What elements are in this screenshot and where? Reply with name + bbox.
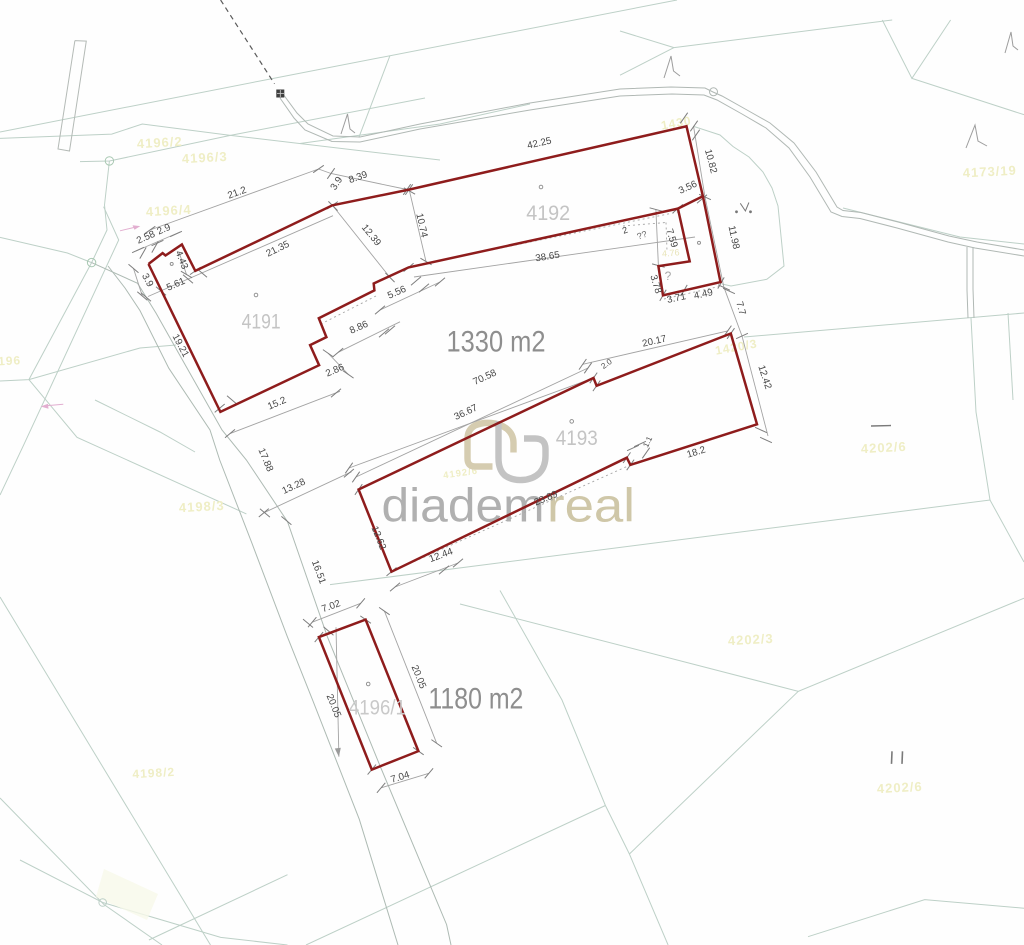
svg-text:4198/3: 4198/3 [179, 498, 225, 515]
svg-text:4196/4: 4196/4 [146, 202, 192, 219]
svg-text:4.76: 4.76 [662, 247, 680, 258]
svg-text:4198/2: 4198/2 [132, 765, 175, 781]
svg-text:?: ? [665, 269, 672, 283]
svg-text:1180 m2: 1180 m2 [428, 683, 523, 716]
svg-text:4196/3: 4196/3 [182, 149, 228, 166]
svg-text:1330 m2: 1330 m2 [447, 326, 546, 359]
svg-text:4192: 4192 [526, 202, 570, 225]
svg-text:4202/6: 4202/6 [861, 439, 907, 456]
svg-text:4193: 4193 [556, 427, 598, 450]
svg-text:diadem: diadem [382, 479, 545, 532]
svg-text:4196: 4196 [0, 353, 21, 369]
svg-text:real: real [547, 479, 635, 532]
svg-text:4173/19: 4173/19 [962, 163, 1017, 181]
svg-text:4196/1: 4196/1 [349, 696, 406, 719]
svg-text:4191: 4191 [242, 310, 281, 333]
svg-text:4202/3: 4202/3 [728, 631, 774, 648]
svg-text:4202/6: 4202/6 [877, 779, 923, 796]
svg-text:4196/2: 4196/2 [137, 134, 183, 151]
